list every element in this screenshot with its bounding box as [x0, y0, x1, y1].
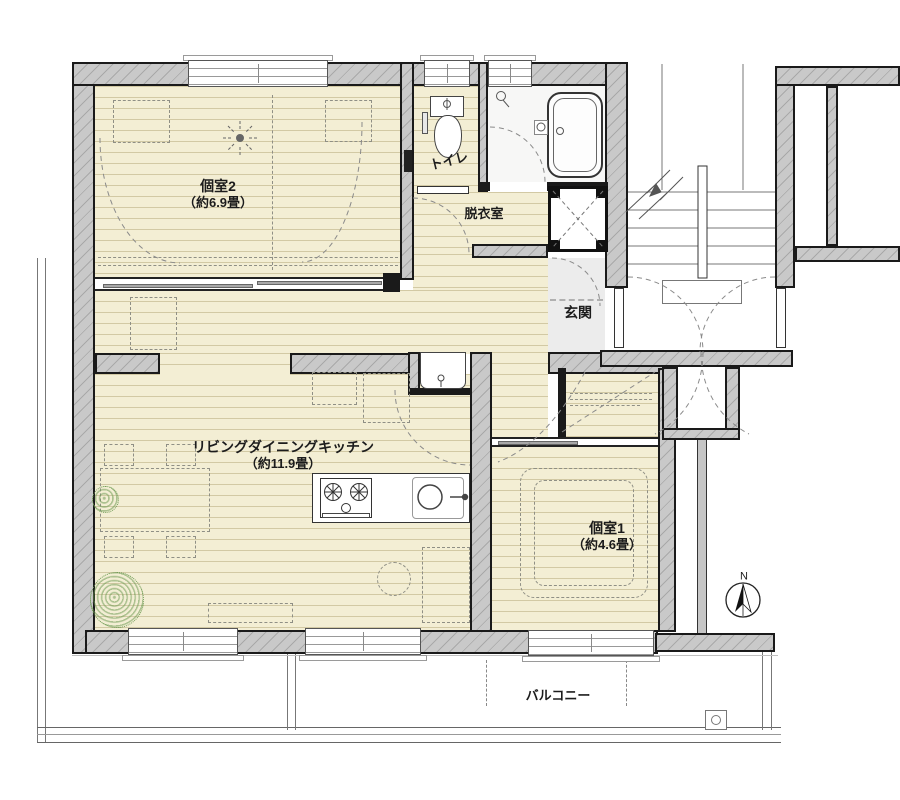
- wall-hall-closet: [558, 368, 566, 440]
- north-letter: N: [740, 570, 748, 583]
- window-toilet-top: [424, 60, 470, 87]
- sliding-door-room1: [492, 437, 658, 447]
- balcony-railing-bottom: [37, 727, 781, 743]
- refrigerator-outline: [363, 373, 410, 423]
- sliding-door-pillar: [383, 273, 400, 292]
- balcony-divider: [287, 654, 296, 730]
- chair-outline: [104, 536, 134, 558]
- toilet-tank: [430, 96, 464, 117]
- chair-outline: [166, 536, 196, 558]
- entrance-label: 玄関: [564, 305, 592, 322]
- window-room1: [528, 630, 654, 656]
- stair-landing-step: [662, 280, 742, 304]
- hallway-floor-upper: [413, 254, 548, 290]
- window-sill: [299, 655, 427, 661]
- ldk-opening-floor: [160, 353, 290, 375]
- pipe-shaft: [548, 186, 608, 252]
- balcony-railing-midline: [37, 734, 781, 735]
- wall-left: [72, 84, 95, 654]
- closet-shelf-line: [570, 393, 652, 394]
- window-bath-top: [488, 60, 532, 87]
- window-sill: [122, 655, 244, 661]
- shaft-corner: [596, 189, 605, 198]
- wall-stairhall-south: [600, 350, 793, 367]
- bathtub-inner: [553, 98, 597, 172]
- closet-shelf-line: [570, 399, 652, 400]
- toilet-door: [417, 186, 469, 194]
- room1-label: 個室1 （約4.6畳）: [572, 520, 642, 552]
- tv-board-outline: [208, 603, 293, 623]
- futon-line: [98, 257, 398, 266]
- wall-bath-bottom-a: [478, 182, 490, 191]
- shaft-corner: [596, 240, 605, 249]
- desk-outline: [113, 100, 170, 143]
- plant: [92, 486, 119, 513]
- wall-unit-right: [605, 62, 628, 288]
- balcony-drain-box: [705, 710, 727, 730]
- hallway-floor-lower: [492, 352, 548, 438]
- compass-icon: [726, 583, 760, 617]
- outer-fence: [697, 440, 707, 633]
- neighbor-wall-mid: [826, 86, 838, 246]
- balcony-partition-mark: [486, 660, 487, 706]
- sofa-outline: [422, 547, 470, 623]
- toilet-panel: [422, 112, 428, 134]
- wall-ldk-top-a: [95, 353, 160, 374]
- room2-name: 個室2: [183, 178, 253, 195]
- shaft-corner: [551, 240, 560, 249]
- stair-break-line: [626, 170, 683, 219]
- wall-ldk-east: [470, 352, 492, 632]
- wall-top: [72, 62, 628, 86]
- balcony-post-right: [762, 652, 772, 730]
- balcony-partition-mark: [626, 660, 627, 706]
- window-ldk-1: [128, 628, 238, 655]
- sliding-pane: [103, 284, 253, 288]
- entrance-step-line: [550, 299, 603, 301]
- washbasin: [420, 352, 466, 389]
- ldk-size: （約11.9畳）: [192, 456, 374, 472]
- neighbor-door: [776, 288, 786, 348]
- neighbor-wall-left: [775, 84, 795, 288]
- kitchen-sink-basin: [412, 477, 464, 519]
- room2-size: （約6.9畳）: [183, 195, 253, 211]
- bathtub: [547, 92, 603, 178]
- washroom-name: 脱衣室: [464, 206, 503, 222]
- round-table-outline: [377, 562, 411, 596]
- neighbor-wall-top: [775, 66, 900, 86]
- neighbor-wall-low: [795, 246, 900, 262]
- wall-bottom-right: [655, 633, 775, 652]
- window-room2-top: [188, 60, 328, 87]
- closet-shelf-line: [570, 405, 640, 406]
- entrance-name: 玄関: [564, 305, 592, 322]
- washroom-label: 脱衣室: [464, 206, 503, 222]
- entrance-door: [614, 288, 624, 348]
- ldk-label: リビングダイニングキッチン （約11.9畳）: [192, 439, 374, 471]
- room2-label: 個室2 （約6.9畳）: [183, 178, 253, 210]
- alcove-wall-south: [662, 428, 740, 440]
- window-ldk-2: [305, 628, 421, 655]
- wall-washroom-bottom: [472, 244, 548, 258]
- wall-toilet-bath: [478, 62, 488, 192]
- ldk-name: リビングダイニングキッチン: [192, 439, 374, 456]
- alcove-interior: [678, 367, 725, 428]
- balcony-railing-left: [37, 258, 46, 742]
- floor-plan: 個室2 （約6.9畳） トイレ 脱衣室 玄関 リビングダイニングキッチン （約1…: [0, 0, 900, 800]
- closet-floor: [566, 370, 658, 438]
- balcony-label: バルコニー: [526, 688, 591, 704]
- plant: [90, 572, 144, 628]
- bed-outline-room2: [325, 100, 372, 142]
- room1-name: 個室1: [572, 520, 642, 537]
- balcony-name: バルコニー: [526, 688, 591, 704]
- appliance-outline: [312, 372, 357, 405]
- wall-basin-south: [408, 388, 470, 395]
- stove-handle: [322, 513, 370, 518]
- meter-box: [404, 150, 412, 172]
- hall-shelf-outline: [130, 297, 177, 350]
- stair-handrail: [698, 166, 707, 278]
- wall-ldk-top-b: [290, 353, 413, 374]
- gas-stove: [320, 478, 372, 518]
- room1-size: （約4.6畳）: [572, 537, 642, 553]
- sliding-pane: [257, 281, 382, 285]
- sliding-pane: [498, 441, 578, 445]
- sliding-door-room2: [95, 277, 400, 291]
- window-sill: [522, 656, 660, 662]
- shaft-corner: [551, 189, 560, 198]
- north-label: N: [740, 570, 748, 583]
- stairs: [628, 64, 775, 264]
- chair-outline: [104, 444, 134, 466]
- bath-drain-box: [534, 120, 548, 135]
- curtain-line: [272, 95, 273, 270]
